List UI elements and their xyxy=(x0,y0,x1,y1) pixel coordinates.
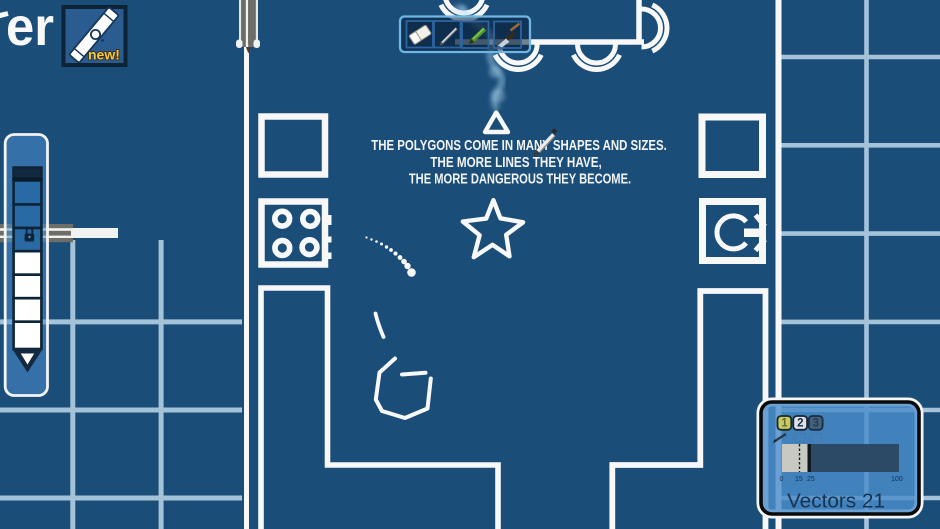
svg-text:1: 1 xyxy=(781,418,788,430)
svg-text:3: 3 xyxy=(813,418,819,430)
svg-text:15: 15 xyxy=(795,476,803,483)
svg-text:25: 25 xyxy=(807,476,815,483)
svg-text:Vectors 21: Vectors 21 xyxy=(787,491,885,513)
svg-text:THE POLYGONS COME IN MANY SHAP: THE POLYGONS COME IN MANY SHAPES AND SIZ… xyxy=(371,137,667,154)
svg-text:100: 100 xyxy=(891,476,903,483)
svg-text:er: er xyxy=(6,0,54,57)
svg-text:2: 2 xyxy=(797,418,803,430)
svg-text:0: 0 xyxy=(780,476,784,483)
svg-text:THE MORE LINES THEY HAVE,: THE MORE LINES THEY HAVE, xyxy=(430,154,602,171)
svg-text:THE MORE DANGEROUS THEY BECOME: THE MORE DANGEROUS THEY BECOME. xyxy=(409,171,631,188)
svg-text:new!: new! xyxy=(88,47,120,63)
